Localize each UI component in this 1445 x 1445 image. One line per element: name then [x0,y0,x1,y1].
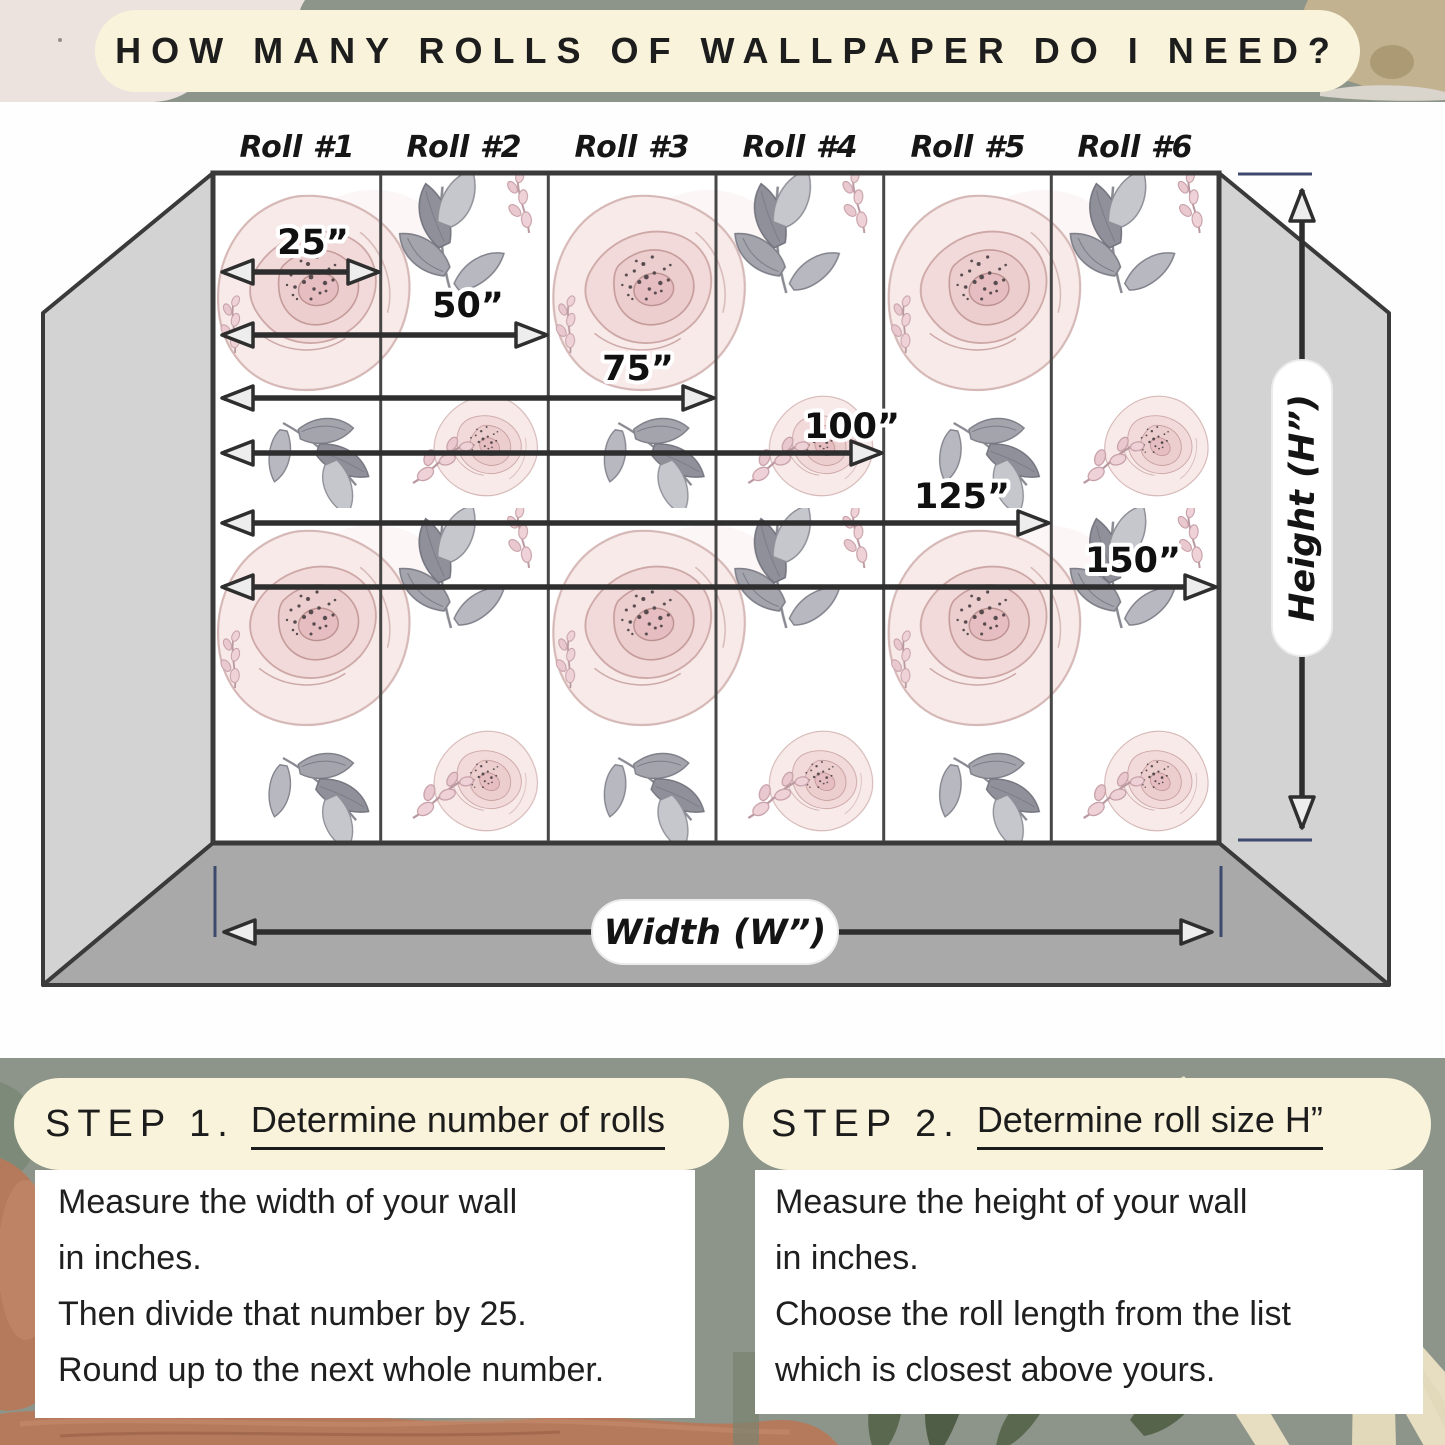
measurement-label-25: 25” [277,223,349,263]
roll-label-3: Roll #3 [575,130,690,165]
height-label: Height (H”) [1283,394,1323,622]
measurement-label-125: 125” [914,477,1010,517]
step1-line: Then divide that number by 25. [58,1286,695,1342]
step1-body: Measure the width of your wall in inches… [35,1170,695,1418]
roll-label-5: Roll #5 [911,130,1026,165]
step1-header: STEP 1. Determine number of rolls [14,1078,729,1170]
measurement-label-150: 150” [1085,541,1181,581]
step1-label: STEP 1. [45,1103,235,1146]
roll-label-6: Roll #6 [1078,130,1193,165]
page-title: HOW MANY ROLLS OF WALLPAPER DO I NEED? [115,30,1340,72]
step2-body: Measure the height of your wall in inche… [755,1170,1423,1414]
step2-label: STEP 2. [771,1103,961,1146]
step1-line: Round up to the next whole number. [58,1342,695,1398]
step2-heading: Determine roll size H” [977,1099,1323,1150]
step2-line: in inches. [775,1230,1423,1286]
step1-line: Measure the width of your wall [58,1174,695,1230]
title-banner: HOW MANY ROLLS OF WALLPAPER DO I NEED? [95,10,1360,92]
roll-label-4: Roll #4 [743,130,858,165]
step1-heading: Determine number of rolls [251,1099,665,1150]
step1-line: in inches. [58,1230,695,1286]
measurement-label-100: 100” [804,407,900,447]
step2-header: STEP 2. Determine roll size H” [743,1078,1431,1170]
step2-line: Measure the height of your wall [775,1174,1423,1230]
measurement-label-75: 75” [602,349,674,389]
step2-line: which is closest above yours. [775,1342,1423,1398]
measurement-label-50: 50” [432,286,504,326]
roll-label-1: Roll #1 [240,130,355,165]
roll-label-2: Roll #2 [407,130,522,165]
step2-line: Choose the roll length from the list [775,1286,1423,1342]
infographic-page: Roll #1 Roll #2 Roll #3 Roll #4 Roll #5 … [0,0,1445,1445]
width-label: Width (W”) [604,913,827,953]
